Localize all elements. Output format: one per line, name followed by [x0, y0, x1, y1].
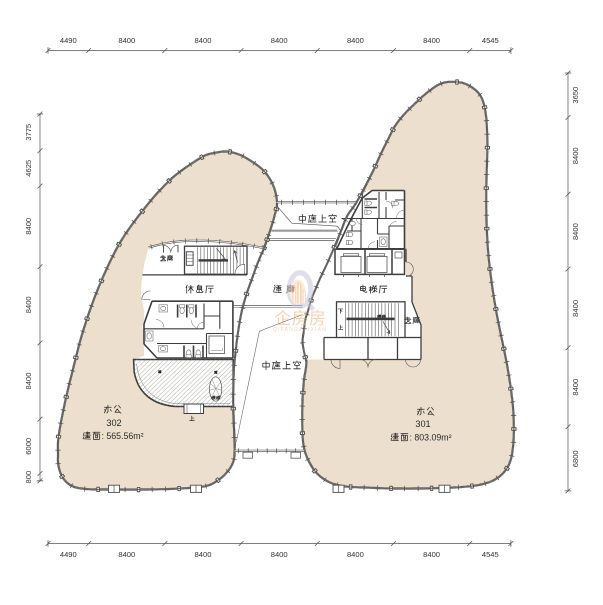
- svg-text:: 803.09m²: : 803.09m²: [410, 432, 452, 442]
- svg-text:8400: 8400: [271, 36, 288, 45]
- svg-text:6800: 6800: [571, 450, 580, 467]
- svg-text:8400: 8400: [571, 300, 580, 317]
- svg-text:8400: 8400: [423, 550, 440, 559]
- svg-text:8400: 8400: [24, 373, 33, 390]
- svg-text:4490: 4490: [60, 36, 77, 45]
- svg-text:8400: 8400: [118, 550, 135, 559]
- svg-text:8400: 8400: [571, 147, 580, 164]
- svg-text:8400: 8400: [118, 36, 135, 45]
- svg-text:4545: 4545: [482, 550, 499, 559]
- svg-text:8400: 8400: [423, 36, 440, 45]
- svg-text:8400: 8400: [195, 550, 212, 559]
- svg-text:QIFANGZAIXIAN: QIFANGZAIXIAN: [273, 327, 327, 333]
- svg-text:8400: 8400: [571, 223, 580, 240]
- svg-text:8400: 8400: [347, 550, 364, 559]
- svg-text:800: 800: [24, 471, 33, 484]
- svg-text:3775: 3775: [24, 124, 33, 141]
- svg-text:房: 房: [309, 309, 326, 328]
- svg-text:4625: 4625: [24, 160, 33, 177]
- svg-text:6000: 6000: [24, 438, 33, 455]
- svg-text:8400: 8400: [347, 36, 364, 45]
- svg-text:4490: 4490: [60, 550, 77, 559]
- svg-text:3650: 3650: [571, 87, 580, 104]
- svg-text:8400: 8400: [571, 379, 580, 396]
- svg-text:8400: 8400: [24, 296, 33, 313]
- svg-text:301: 301: [415, 419, 430, 429]
- svg-text:企: 企: [275, 309, 292, 328]
- svg-text:8400: 8400: [271, 550, 288, 559]
- svg-text:房: 房: [292, 309, 309, 328]
- svg-text:: 565.56m²: : 565.56m²: [102, 431, 144, 441]
- svg-text:8400: 8400: [24, 218, 33, 235]
- svg-text:302: 302: [106, 418, 121, 428]
- svg-text:4545: 4545: [482, 36, 499, 45]
- svg-text:8400: 8400: [195, 36, 212, 45]
